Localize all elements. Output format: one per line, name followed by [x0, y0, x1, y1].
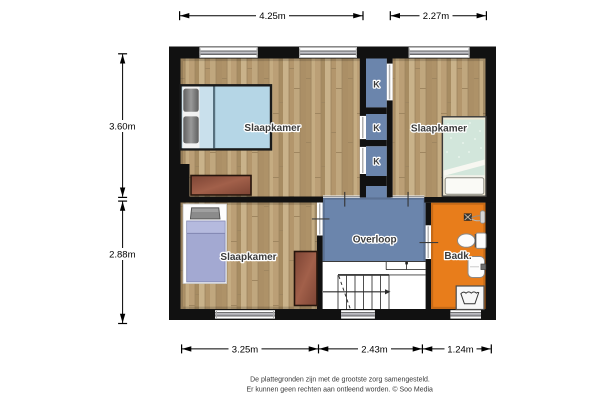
svg-text:4.25m: 4.25m	[259, 11, 285, 22]
svg-text:Badk.: Badk.	[444, 251, 471, 262]
svg-text:Slaapkamer: Slaapkamer	[411, 123, 467, 134]
svg-text:2.27m: 2.27m	[423, 11, 449, 22]
svg-text:K: K	[373, 157, 380, 167]
svg-text:2.43m: 2.43m	[361, 344, 387, 355]
svg-text:K: K	[373, 80, 380, 90]
svg-text:Overloop: Overloop	[353, 235, 397, 246]
svg-text:3.25m: 3.25m	[232, 344, 258, 355]
svg-text:3.60m: 3.60m	[109, 122, 135, 133]
svg-text:Slaapkamer: Slaapkamer	[244, 123, 300, 134]
svg-text:Slaapkamer: Slaapkamer	[220, 252, 276, 263]
svg-text:1.24m: 1.24m	[447, 344, 473, 355]
svg-text:2.88m: 2.88m	[109, 250, 135, 261]
svg-text:Er kunnen geen rechten aan ont: Er kunnen geen rechten aan ontleend word…	[246, 385, 433, 393]
svg-text:De plattegronden zijn met de g: De plattegronden zijn met de grootste zo…	[250, 376, 430, 383]
svg-text:K: K	[373, 123, 380, 133]
